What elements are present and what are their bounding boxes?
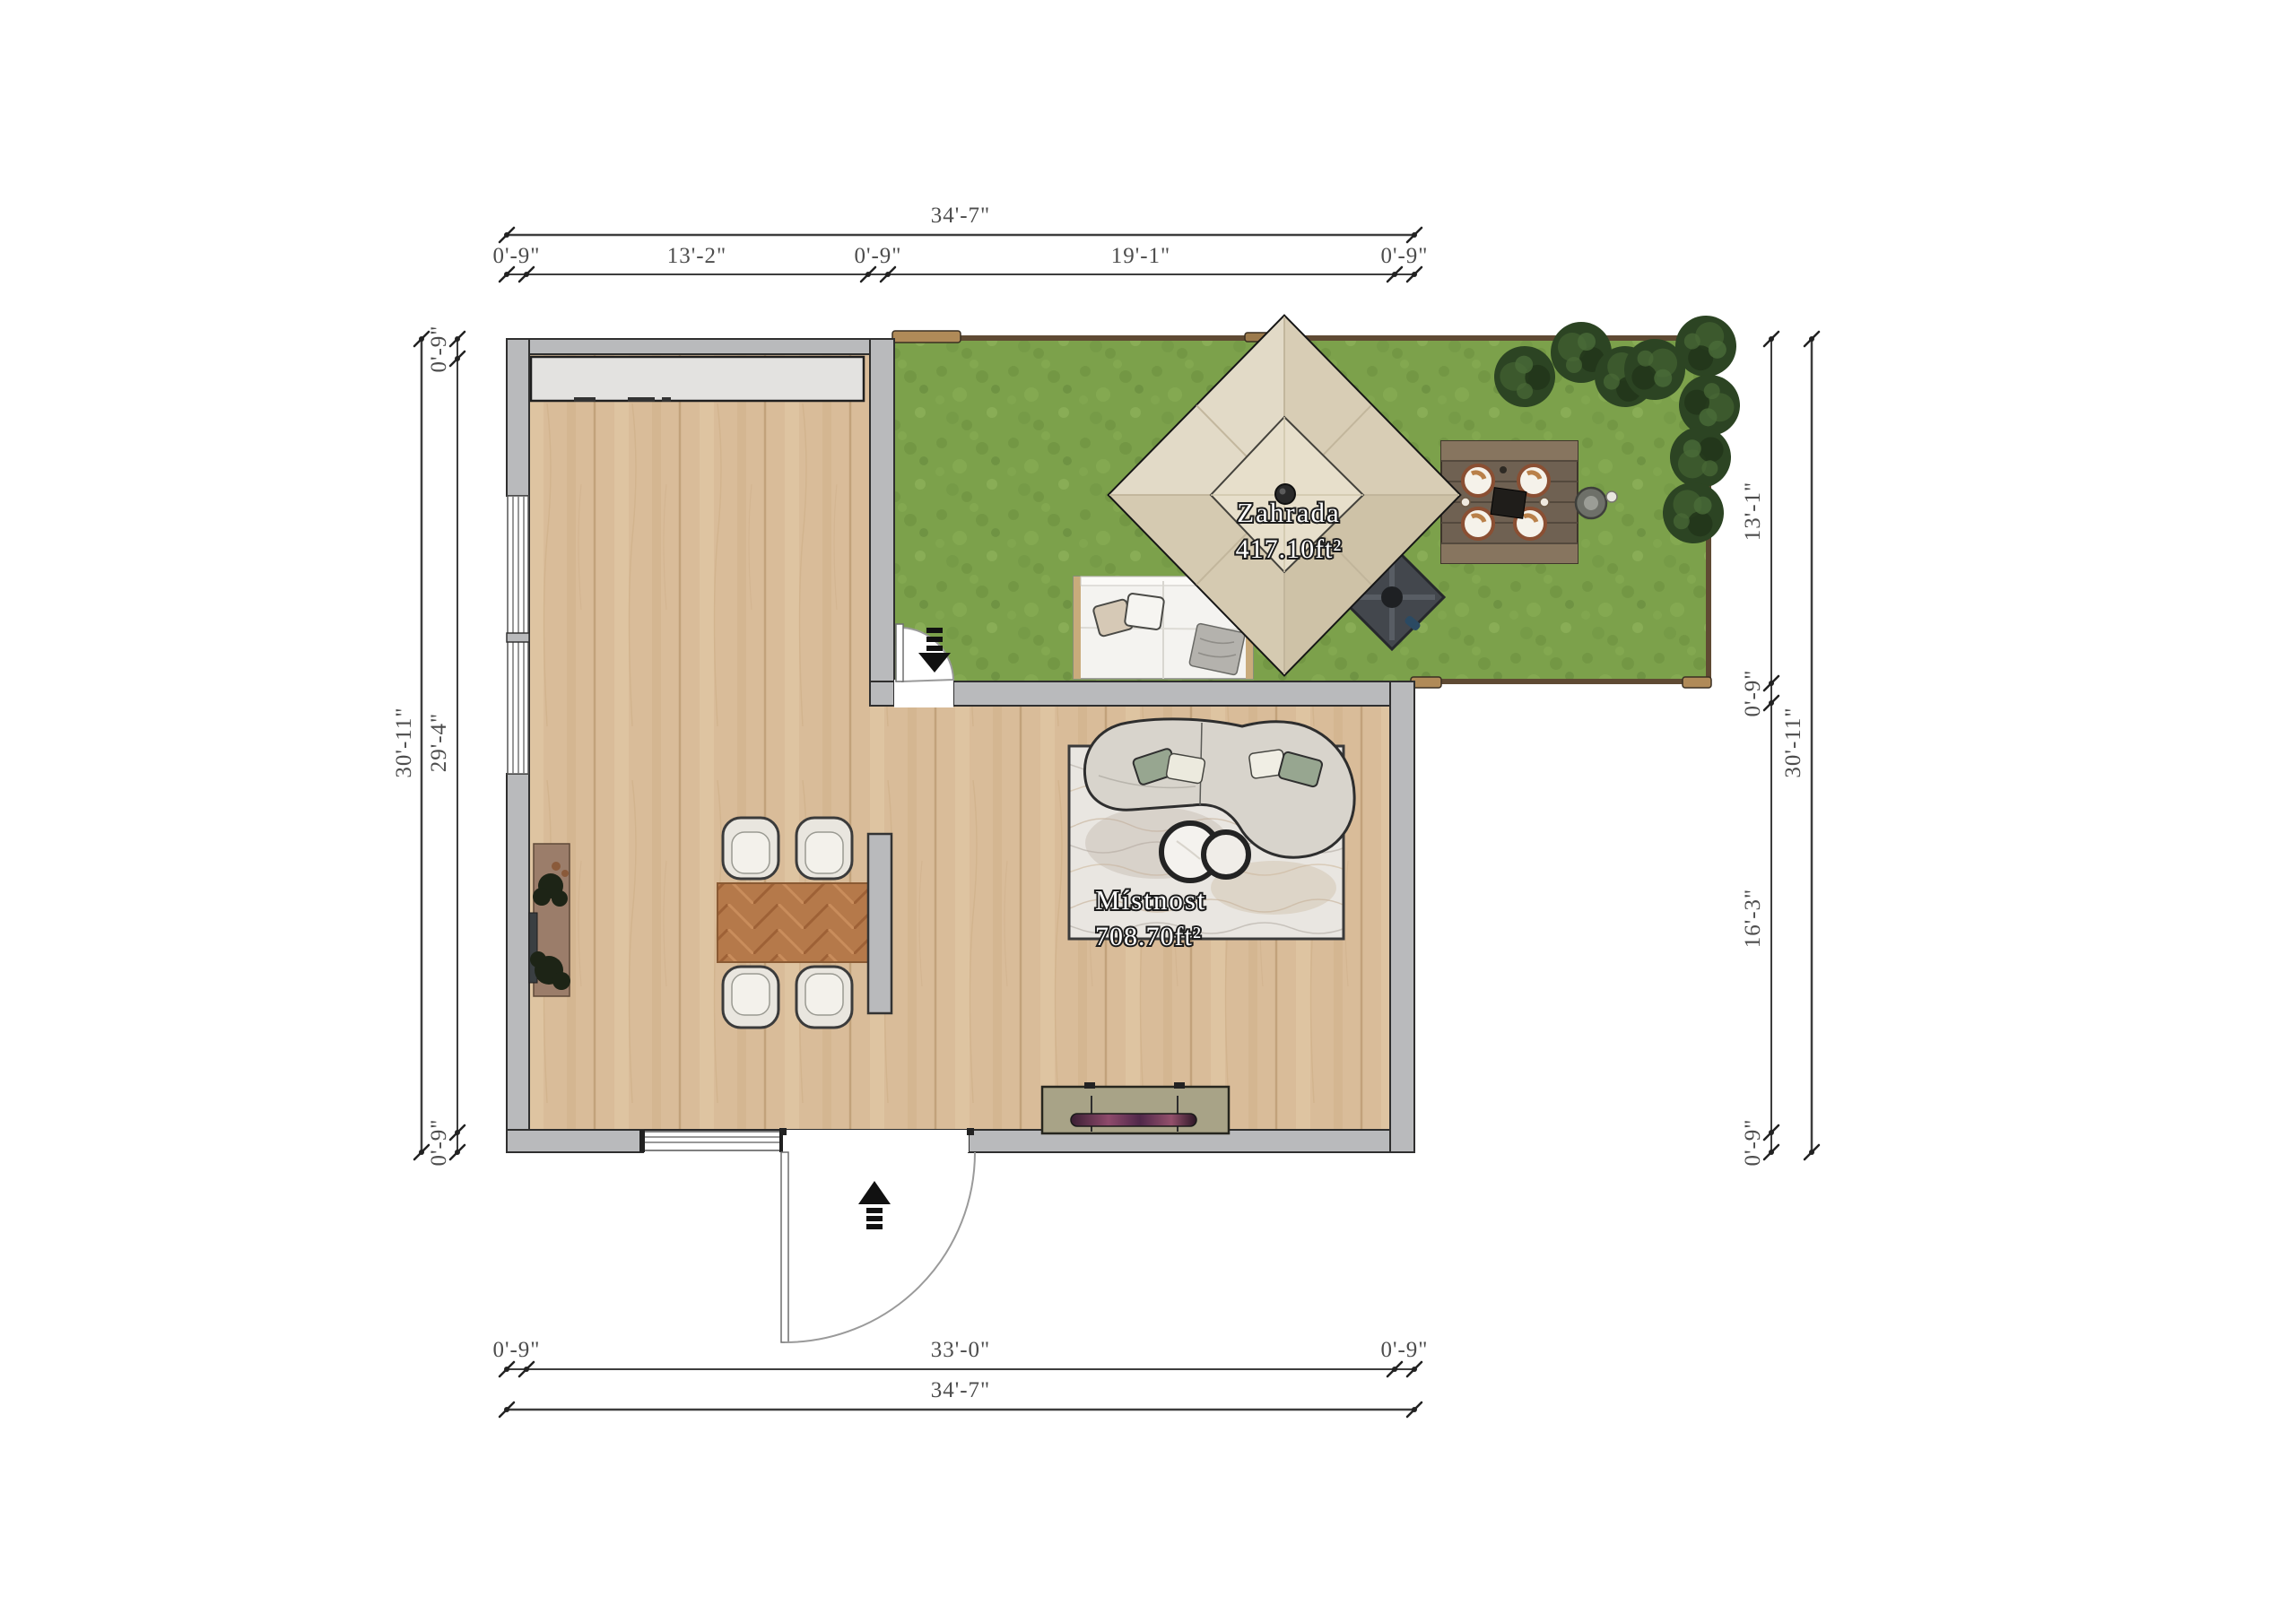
top-cabinet bbox=[531, 357, 864, 402]
wall-console bbox=[529, 844, 570, 996]
svg-text:13'-1": 13'-1" bbox=[1741, 482, 1765, 542]
dimension-left-overall: 30'-11" bbox=[392, 332, 429, 1159]
svg-text:30'-11": 30'-11" bbox=[1781, 707, 1805, 777]
wall-left-lower bbox=[507, 774, 529, 1152]
svg-text:30'-11": 30'-11" bbox=[392, 707, 416, 777]
entrance-door bbox=[779, 1128, 975, 1342]
garden-area: Zahrada 417.10ft² bbox=[892, 311, 1749, 688]
tv-console bbox=[1042, 1082, 1229, 1133]
entrance-door-leaf bbox=[781, 1152, 788, 1342]
dining-table bbox=[717, 883, 868, 962]
tv-screen bbox=[1071, 1114, 1196, 1126]
svg-text:0'-9": 0'-9" bbox=[492, 1338, 540, 1362]
dimension-bottom-overall: 34'-7" bbox=[500, 1378, 1422, 1417]
dimension-top-overall: 34'-7" bbox=[500, 204, 1422, 242]
svg-text:34'-7": 34'-7" bbox=[931, 1378, 991, 1402]
wall-garden-divider bbox=[870, 339, 894, 681]
dining-chair bbox=[723, 967, 778, 1028]
svg-text:29'-4": 29'-4" bbox=[427, 713, 451, 773]
floor-plan-drawing: Zahrada 417.10ft² bbox=[0, 0, 2296, 1623]
dimension-bottom-segments: 0'-9" 33'-0" 0'-9" bbox=[492, 1338, 1428, 1376]
window-left bbox=[507, 496, 529, 774]
dimension-left-segments: 0'-9" 29'-4" 0'-9" bbox=[427, 325, 465, 1166]
svg-text:0'-9": 0'-9" bbox=[1380, 1338, 1428, 1362]
wall-left-upper bbox=[507, 339, 529, 496]
garden-room-label: Zahrada bbox=[1237, 497, 1341, 528]
svg-text:0'-9": 0'-9" bbox=[1380, 244, 1428, 268]
svg-text:0'-9": 0'-9" bbox=[427, 1118, 451, 1166]
svg-text:0'-9": 0'-9" bbox=[427, 325, 451, 372]
wall-right bbox=[1390, 681, 1414, 1152]
svg-text:0'-9": 0'-9" bbox=[492, 244, 540, 268]
svg-text:34'-7": 34'-7" bbox=[931, 204, 991, 228]
svg-text:33'-0": 33'-0" bbox=[931, 1338, 991, 1362]
dimension-top-segments: 0'-9" 13'-2" 0'-9" 19'-1" 0'-9" bbox=[492, 244, 1428, 282]
dimension-right-overall: 30'-11" bbox=[1781, 332, 1819, 1159]
svg-text:16'-3": 16'-3" bbox=[1741, 889, 1765, 949]
dining-chair bbox=[796, 967, 852, 1028]
svg-text:13'-2": 13'-2" bbox=[667, 244, 727, 268]
floor-plan-canvas: Zahrada 417.10ft² bbox=[0, 0, 2296, 1623]
living-room-label: Místnost bbox=[1095, 884, 1207, 916]
window-bottom bbox=[639, 1130, 785, 1152]
wall-garden-corner bbox=[870, 681, 894, 706]
wall-top bbox=[507, 339, 894, 354]
svg-text:0'-9": 0'-9" bbox=[854, 244, 901, 268]
svg-text:0'-9": 0'-9" bbox=[1741, 1118, 1765, 1166]
garden-room-area: 417.10ft² bbox=[1236, 534, 1343, 564]
svg-text:0'-9": 0'-9" bbox=[1741, 669, 1765, 716]
garden-door-leaf bbox=[896, 624, 903, 681]
dimension-right-segments: 13'-1" 0'-9" 16'-3" 0'-9" bbox=[1741, 332, 1779, 1167]
dining-chair bbox=[723, 818, 778, 879]
dining-chair bbox=[796, 818, 852, 879]
picnic-table bbox=[1441, 441, 1578, 563]
sideboard bbox=[868, 834, 891, 1013]
lounge-area: Místnost 708.70ft² bbox=[1069, 719, 1354, 951]
living-room-area: 708.70ft² bbox=[1095, 922, 1202, 951]
coffee-table-small bbox=[1204, 832, 1248, 877]
wall-bottom-left bbox=[507, 1130, 643, 1152]
wall-garden-bottom bbox=[953, 681, 1390, 706]
sofa-pillow bbox=[1166, 753, 1205, 785]
svg-text:19'-1": 19'-1" bbox=[1111, 244, 1171, 268]
entry-arrow-icon bbox=[858, 1181, 891, 1229]
